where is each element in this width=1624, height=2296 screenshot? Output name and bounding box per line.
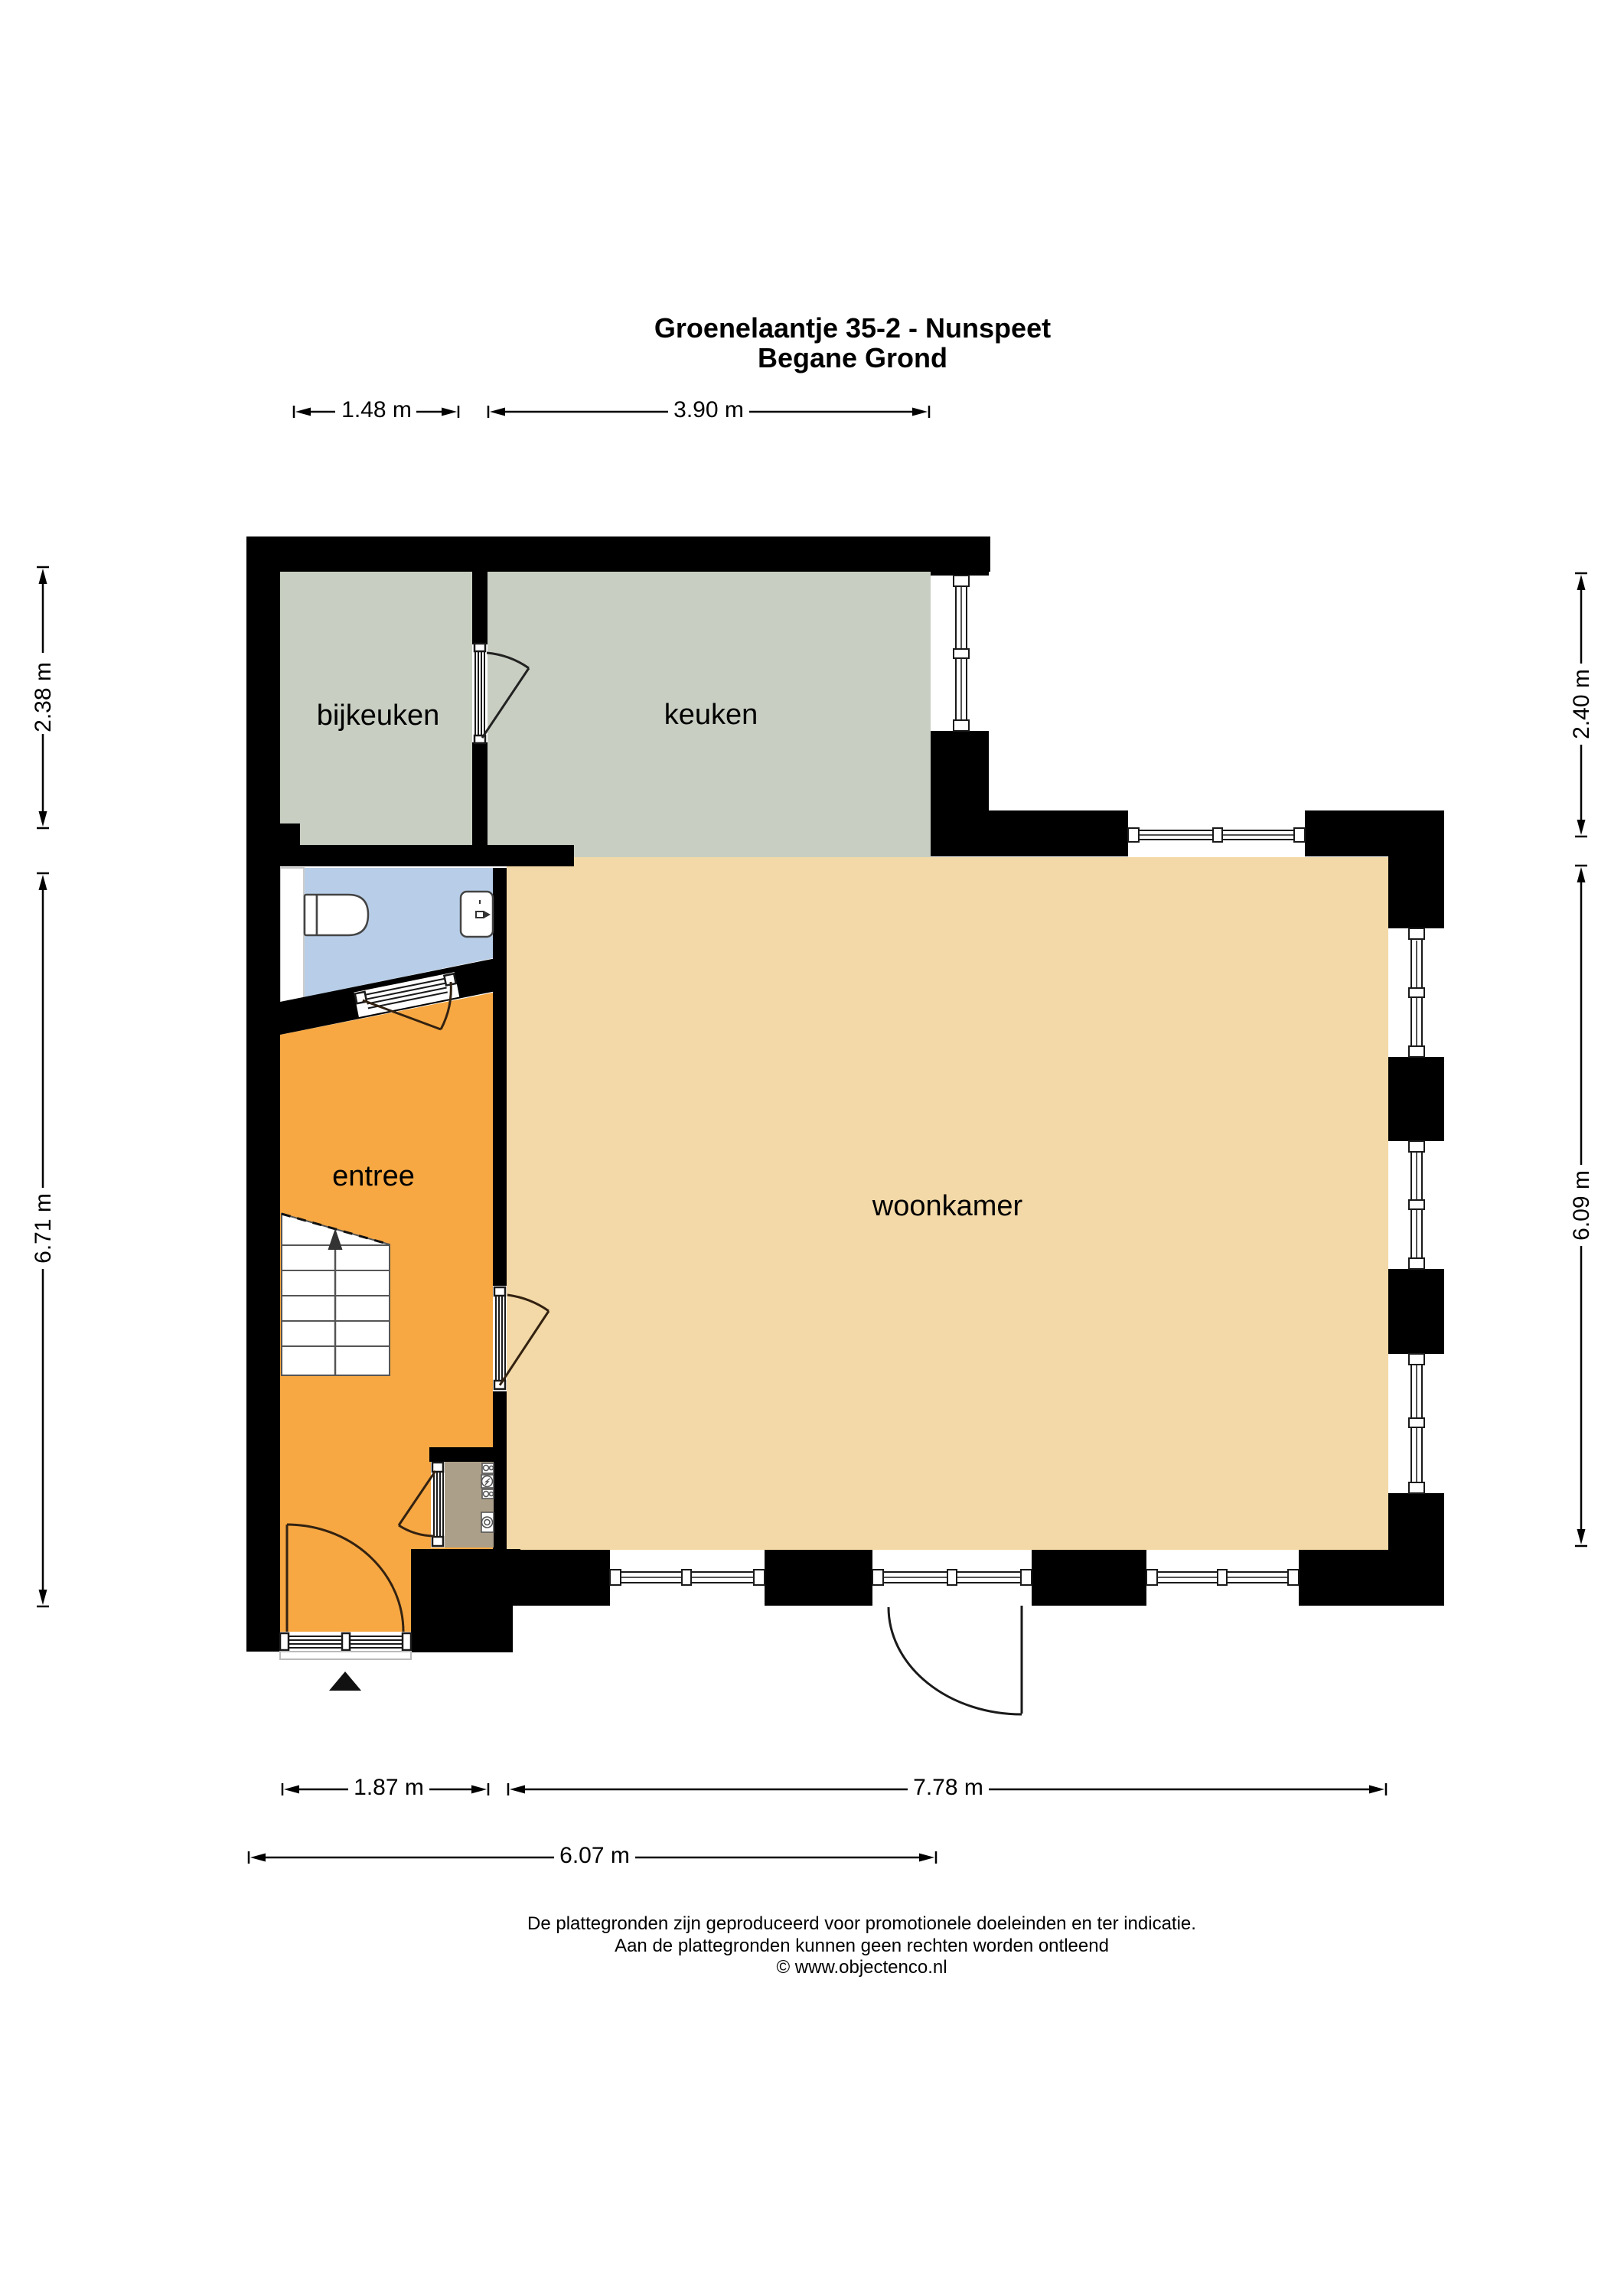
- svg-text:6.71 m: 6.71 m: [31, 1193, 56, 1264]
- svg-text:© www.objectenco.nl: © www.objectenco.nl: [776, 1957, 947, 1978]
- svg-text:entree: entree: [332, 1160, 415, 1192]
- svg-text:bijkeuken: bijkeuken: [317, 700, 440, 732]
- svg-text:6.09 m: 6.09 m: [1569, 1170, 1594, 1241]
- svg-text:2.40 m: 2.40 m: [1569, 669, 1594, 739]
- svg-text:Begane Grond: Begane Grond: [758, 342, 947, 373]
- svg-text:1.87 m: 1.87 m: [354, 1775, 424, 1800]
- svg-text:2.38 m: 2.38 m: [31, 662, 56, 732]
- svg-text:6.07 m: 6.07 m: [559, 1843, 630, 1868]
- svg-text:woonkamer: woonkamer: [872, 1190, 1023, 1222]
- svg-text:3.90 m: 3.90 m: [673, 397, 744, 422]
- svg-text:keuken: keuken: [664, 699, 758, 731]
- svg-text:Aan de plattegronden kunnen ge: Aan de plattegronden kunnen geen rechten…: [615, 1936, 1109, 1956]
- svg-text:Groenelaantje 35-2 - Nunspeet: Groenelaantje 35-2 - Nunspeet: [654, 312, 1051, 344]
- svg-text:1.48 m: 1.48 m: [341, 397, 412, 422]
- svg-text:De plattegronden zijn geproduc: De plattegronden zijn geproduceerd voor …: [527, 1913, 1196, 1934]
- svg-text:7.78 m: 7.78 m: [913, 1775, 983, 1800]
